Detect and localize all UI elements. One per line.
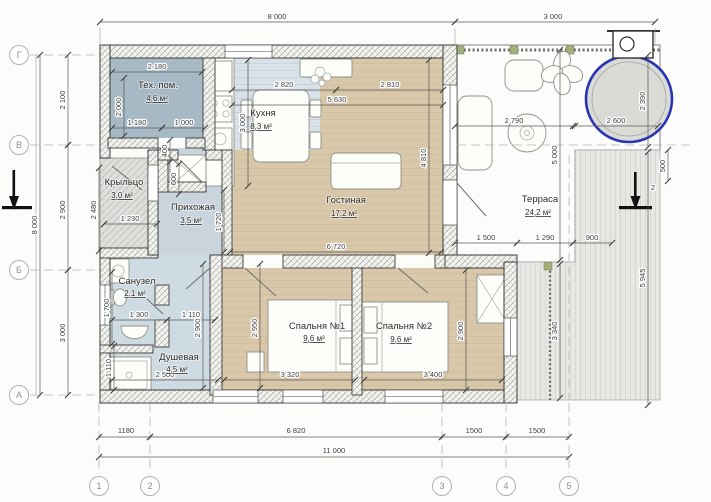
dim-label: 2 950 <box>250 319 259 338</box>
room-area: 17,2 м² <box>331 209 357 218</box>
wall-tech-kitchen <box>203 58 215 150</box>
deck-marker-icon <box>510 46 518 54</box>
room-area: 3,0 м² <box>111 191 133 200</box>
dim-label: 1 290 <box>536 233 555 242</box>
dim-label: 2 900 <box>58 201 67 220</box>
dim-label: 2 900 <box>193 319 202 338</box>
dim-label: 3 320 <box>281 370 300 379</box>
window <box>283 390 323 403</box>
dim-label: 1500 <box>466 426 483 435</box>
dim-label: 1 000 <box>175 118 194 127</box>
room-area: 9,6 м² <box>303 334 325 343</box>
room-area: 2,1 м² <box>124 289 146 298</box>
nightstand <box>247 352 264 372</box>
room-name: Душевая <box>159 352 199 363</box>
axis-label: 2 <box>147 481 152 491</box>
terrace-lounge-chair <box>458 96 492 170</box>
dim-label: 3 000 <box>544 12 563 21</box>
dim-label: 1 110 <box>182 310 200 319</box>
dim-label: 600 <box>169 173 178 186</box>
dim-label: 3 340 <box>550 322 559 341</box>
wall-tech-bottom-b <box>186 138 205 148</box>
wardrobe <box>477 275 507 323</box>
dim-label: 2 820 <box>275 80 294 89</box>
window <box>213 390 258 403</box>
dim-label: 2 900 <box>456 322 465 341</box>
shower-tray <box>107 357 151 393</box>
dim-label: 2 390 <box>638 92 647 111</box>
chair <box>241 132 252 149</box>
dim-label: 2 180 <box>148 62 167 71</box>
wall-shower-bed1 <box>210 255 222 395</box>
dim-label: 1 110 <box>104 359 113 377</box>
terrace-plant-icon <box>539 49 585 97</box>
dim-label: 400 <box>160 145 169 158</box>
dim-label: 2 600 <box>607 116 626 125</box>
dim-label: 11 000 <box>323 446 345 455</box>
room-area: 3,5 м² <box>180 216 202 225</box>
dim-label: 2 100 <box>58 91 67 110</box>
dim-label: 2 790 <box>505 116 524 125</box>
terrace-armchair <box>505 60 543 91</box>
room-area: 9,6 м² <box>390 335 412 344</box>
wall-hall-living <box>222 150 232 255</box>
room-name: Тех. пом. <box>138 80 178 91</box>
room-name: Спальня №2 <box>376 321 432 332</box>
dim-label: 1 700 <box>102 299 111 318</box>
wall-bedrooms-top-c <box>435 255 445 268</box>
dim-label: 6 720 <box>327 242 346 251</box>
axis-label: 3 <box>439 481 444 491</box>
dim-label: 2 810 <box>381 80 400 89</box>
window <box>225 45 272 58</box>
wall-wc-shower <box>100 345 153 353</box>
entrance-arrow-icon <box>2 170 32 210</box>
axis-label: 4 <box>503 481 508 491</box>
room-area: 4,5 м² <box>166 365 188 374</box>
dim-label: 900 <box>586 233 599 242</box>
floor-plan-svg: Г В Б А 1 2 3 4 5 <box>0 0 711 502</box>
dim-label: 8 000 <box>268 12 287 21</box>
dim-label: 1 230 <box>121 214 140 223</box>
chair <box>310 100 321 117</box>
room-name: Прихожая <box>171 202 215 213</box>
entry-door-gap <box>148 165 158 201</box>
chimney-icon <box>607 31 660 58</box>
dim-label: 1180 <box>118 426 134 435</box>
room-name: Крыльцо <box>105 177 144 188</box>
dim-label: 1 180 <box>128 118 147 127</box>
wall-top <box>100 45 457 58</box>
dim-label: 1 500 <box>477 233 496 242</box>
axis-label: В <box>16 140 22 150</box>
dim-label: 2 000 <box>114 98 123 117</box>
dim-label: 1 720 <box>214 213 223 232</box>
room-name: Спальня №1 <box>289 321 345 332</box>
chair <box>310 132 321 149</box>
sofa <box>331 153 401 189</box>
hot-tub-icon <box>586 56 672 142</box>
porch-deck <box>100 158 148 248</box>
dim-label: 5 945 <box>638 269 647 288</box>
axis-label: А <box>16 390 22 400</box>
dim-label: 6 820 <box>287 426 306 435</box>
window <box>504 318 517 356</box>
floor-plan-page: Г В Б А 1 2 3 4 5 <box>0 0 711 502</box>
dim-label: 1 300 <box>130 310 149 319</box>
dim-label: 3 000 <box>238 114 247 133</box>
room-name: Гостиная <box>326 195 366 206</box>
room-name: Кухня <box>250 108 275 119</box>
dim-label: 2 480 <box>89 201 98 220</box>
wall-wc-stub-a <box>155 285 169 305</box>
axis-label: Г <box>17 50 22 60</box>
room-name: Санузел <box>118 276 155 287</box>
section-mark-label: 2 <box>651 183 655 192</box>
room-area: 4,6 м² <box>146 94 168 103</box>
axis-label: Б <box>16 265 22 275</box>
dim-label: 1500 <box>529 426 546 435</box>
room-name: Терраса <box>522 194 559 205</box>
dim-label: 3 000 <box>58 324 67 343</box>
wall-bedrooms-top-b <box>283 255 395 268</box>
axis-label: 5 <box>566 481 571 491</box>
window <box>385 390 443 403</box>
dim-label: 3 400 <box>424 370 443 379</box>
room-area: 24,2 м² <box>525 208 551 217</box>
wall-wc-stub-b <box>155 320 169 347</box>
dim-label: 8 000 <box>30 216 39 235</box>
axis-label: 1 <box>96 481 101 491</box>
room-area: 8,3 м² <box>250 122 272 131</box>
dim-label: 4 810 <box>419 149 428 168</box>
wall-tech-bottom-a <box>108 138 158 148</box>
wall-bed1-bed2 <box>352 268 362 395</box>
dim-label: 500 <box>658 160 667 173</box>
dim-label: 5 000 <box>550 146 559 165</box>
dim-label: 5 630 <box>328 95 347 104</box>
deck-marker-icon <box>544 262 552 270</box>
